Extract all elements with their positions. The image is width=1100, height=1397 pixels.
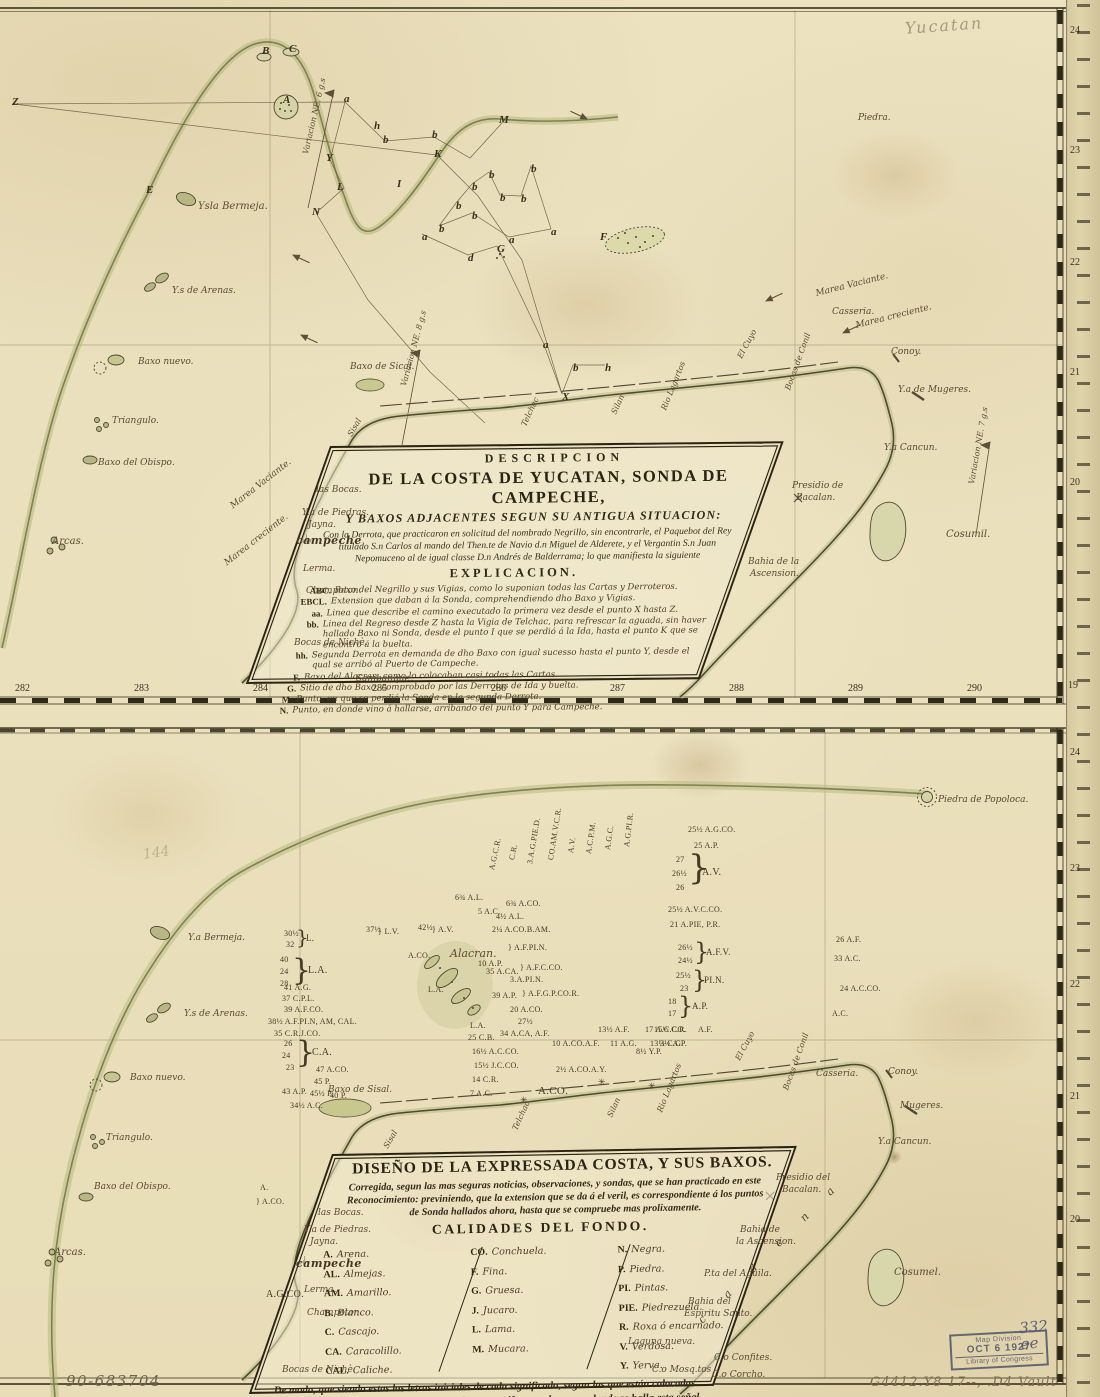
calidad-key: A. — [323, 1250, 333, 1261]
calidad-item: L. Lama. — [472, 1317, 599, 1339]
explicacion-text: Segunda Derrota en demanda de dho Baxo c… — [312, 647, 696, 672]
calidad-key: CAL. — [325, 1366, 349, 1377]
explicacion-text: Linea del Regreso desde Z hasta la Vigia… — [323, 615, 707, 650]
explicacion-key: EBCL. — [293, 597, 331, 608]
calidad-value: Gruesa. — [485, 1285, 523, 1297]
calidad-value: Pintas. — [635, 1283, 669, 1295]
calidad-value: Negra. — [631, 1244, 665, 1256]
call-number: G4412.Y8 17--, .D4 Vault — [870, 1376, 1057, 1390]
calidad-key: G. — [471, 1286, 481, 1297]
description-cartouche: DESCRIPCION DE LA COSTA DE YUCATAN, SOND… — [246, 441, 784, 684]
calidad-value: Verdosa. — [632, 1341, 674, 1353]
cartouche-intro: Con la Derrota, que practicaron en solic… — [318, 525, 736, 565]
explicacion-key: hh. — [273, 651, 311, 672]
calidad-item: R. Roxa ó encarnado. — [619, 1314, 746, 1336]
calidad-item: AL. Almejas. — [323, 1261, 450, 1283]
explicacion-key: G. — [262, 683, 300, 694]
calidad-key: PI. — [618, 1283, 631, 1294]
calidad-item: B. Blanco. — [324, 1300, 451, 1322]
calidad-key: AM. — [324, 1288, 343, 1299]
calidad-item: V. Verdosa. — [619, 1333, 746, 1355]
calidad-item: P. Piedra. — [618, 1256, 745, 1278]
map-sheet: DESCRIPCION DE LA COSTA DE YUCATAN, SOND… — [0, 0, 1100, 1397]
calidad-item: A. Arena. — [323, 1242, 450, 1264]
calidades-col-2: CO. Conchuela.F. Fina.G. Gruesa.J. Jucar… — [470, 1239, 599, 1377]
calidad-item: AM. Amarillo. — [324, 1280, 451, 1302]
calidad-item: PI. Pintas. — [618, 1275, 745, 1297]
calidad-key: AL. — [323, 1269, 339, 1280]
calidad-value: Lama. — [485, 1324, 515, 1335]
calidad-key: PIE. — [619, 1302, 638, 1313]
explicacion-key: M. — [258, 695, 296, 706]
calidad-key: M. — [472, 1344, 484, 1355]
calidad-item: PIE. Piedrezuela. — [618, 1295, 745, 1317]
calidad-value: Piedrezuela. — [642, 1301, 703, 1313]
fondeo-note: De modo, que siendo estas las letras ini… — [268, 1377, 701, 1397]
calidades-col-3: N. Negra.P. Piedra.PI. Pintas.PIE. Piedr… — [617, 1236, 746, 1374]
explicacion-key: F. — [266, 672, 304, 683]
calidad-value: Arena. — [337, 1249, 370, 1260]
calidad-item: Y. Yerva. — [620, 1353, 747, 1375]
cartouche-title: DE LA COSTA DE YUCATAN, SONDA DE CAMPECH… — [338, 465, 760, 509]
calidad-value: Blanco. — [337, 1307, 373, 1319]
explicacion-key: bb. — [285, 619, 324, 650]
calidad-item: G. Gruesa. — [471, 1278, 598, 1300]
calidad-value: Fina. — [482, 1266, 507, 1277]
calidad-key: Y. — [620, 1361, 629, 1372]
calidad-key: C. — [325, 1327, 335, 1338]
calidad-value: Cascajo. — [338, 1326, 379, 1338]
calidades-col-1: A. Arena.AL. Almejas.AM. Amarillo.B. Bla… — [323, 1242, 452, 1380]
calidad-key: L. — [472, 1325, 481, 1336]
cartouche-kicker: DESCRIPCION — [344, 448, 766, 467]
explicacion-key: aa. — [289, 608, 327, 619]
calidad-item: CAL. Caliche. — [325, 1358, 452, 1380]
calidad-key: CA. — [325, 1346, 342, 1357]
library-stamp: Map Division OCT 6 1927 Library of Congr… — [949, 1329, 1049, 1370]
negative-number: 90-683704 — [66, 1374, 161, 1390]
explicacion-key: ABC. — [296, 586, 334, 597]
calidad-item: N. Negra. — [617, 1236, 744, 1258]
calidad-value: Roxa ó encarnado. — [633, 1320, 724, 1333]
explicacion-key: N. — [254, 706, 292, 717]
calidad-value: Mucara. — [488, 1343, 529, 1355]
calidad-key: V. — [619, 1341, 628, 1352]
calidad-item: M. Mucara. — [472, 1336, 599, 1358]
calidad-item: CO. Conchuela. — [470, 1239, 597, 1261]
explicacion-item: bb. Linea del Regreso desde Z hasta la V… — [285, 615, 707, 650]
explicacion-heading: EXPLICACION. — [303, 564, 725, 583]
calidad-value: Caliche. — [353, 1365, 393, 1377]
calidad-value: Jucaro. — [483, 1305, 518, 1317]
edge-tick-marks — [1077, 4, 1090, 1393]
explicacion-list: ABC. Baxo del Negrillo y sus Vigias, com… — [250, 582, 718, 717]
calidad-key: R. — [619, 1322, 629, 1333]
sheet-edge-strip — [1066, 0, 1100, 1397]
calidad-item: F. Fina. — [470, 1258, 597, 1280]
calidad-item: J. Jucaro. — [471, 1297, 598, 1319]
calidad-value: Yerva. — [632, 1360, 662, 1371]
calidad-item: CA. Caracolillo. — [325, 1338, 452, 1360]
calidades-columns: A. Arena.AL. Almejas.AM. Amarillo.B. Bla… — [317, 1236, 752, 1379]
diseno-cartouche: DISEÑO DE LA EXPRESSADA COSTA, Y SUS BAX… — [249, 1146, 797, 1394]
calidad-value: Piedra. — [629, 1263, 664, 1275]
cartouche-subtitle-line: Y BAXOS ADJACENTES SEGUN SU ANTIGUA SITU… — [323, 507, 745, 526]
calidad-key: B. — [324, 1308, 333, 1319]
calidad-value: Conchuela. — [492, 1246, 547, 1258]
calidad-value: Caracolillo. — [346, 1345, 402, 1357]
diseno-intro: Corregida, segun las mas seguras noticia… — [342, 1174, 767, 1220]
calidad-item: C. Cascajo. — [324, 1319, 451, 1341]
calidad-value: Amarillo. — [347, 1287, 392, 1299]
calidad-key: J. — [471, 1305, 479, 1316]
calidad-value: Almejas. — [344, 1268, 386, 1280]
